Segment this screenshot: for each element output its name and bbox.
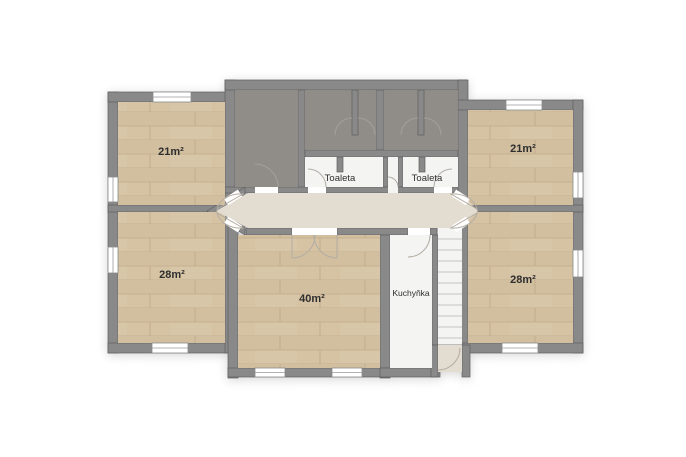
door-gap-room-40-double [292, 228, 337, 235]
label-toilet-left: Toaleta [325, 173, 356, 184]
wall-top-dark-section [225, 80, 467, 90]
wall-divider-right-rooms [475, 205, 583, 212]
wall-corridor-bottom-1 [246, 228, 292, 235]
partition-toilet-left [337, 157, 343, 172]
wall-dark2-dark3 [376, 90, 384, 150]
floor-room-top-right [468, 110, 573, 205]
label-room-mid-right: 28m² [510, 274, 536, 286]
label-kitchen: Kuchyňka [392, 288, 430, 298]
door-gap-dark-room-1 [255, 187, 278, 193]
partition-dark-room-2 [352, 90, 358, 135]
floor-corridor [216, 193, 478, 228]
partition-dark-room-3 [418, 90, 424, 135]
wall-kitchen-stairs [432, 235, 438, 345]
floor-entry [438, 345, 462, 372]
label-room-mid-left: 28m² [159, 269, 185, 281]
label-room-top-left: 21m² [158, 146, 184, 158]
wall-40-bottom [228, 368, 390, 377]
wall-corridor-bottom-2 [337, 228, 408, 235]
partition-toilet-right [419, 157, 425, 172]
floor-vestibule [388, 157, 398, 193]
wall-right-outer [573, 100, 583, 353]
wall-corridor-bottom-3 [430, 228, 437, 235]
wall-vestibule-toilet-right [398, 157, 403, 187]
wall-entry-left [431, 345, 438, 377]
wall-entry-right [462, 345, 470, 377]
floor-kitchen [390, 235, 432, 368]
wall-left-outer [108, 92, 118, 353]
wall-40-left [228, 212, 238, 378]
label-toilet-right: Toaleta [412, 173, 443, 184]
label-room-top-right: 21m² [510, 143, 536, 155]
floor-plan: 21m² 21m² 28m² 28m² 40m² Toaleta Toaleta… [0, 0, 686, 457]
floor-plan-canvas: 21m² 21m² 28m² 28m² 40m² Toaleta Toaleta… [0, 0, 686, 457]
door-gap-toilet-left [308, 187, 326, 193]
floor-dark-room-1 [235, 90, 298, 187]
wall-above-toilets [305, 150, 458, 157]
wall-dark1-dark2 [298, 90, 305, 193]
wall-40-kitchen [380, 235, 390, 378]
door-gap-toilet-right [434, 187, 452, 193]
label-room-bottom-center: 40m² [299, 293, 325, 305]
door-gap-kitchen [408, 228, 430, 235]
wall-toilet-left-vestibule [383, 157, 388, 187]
